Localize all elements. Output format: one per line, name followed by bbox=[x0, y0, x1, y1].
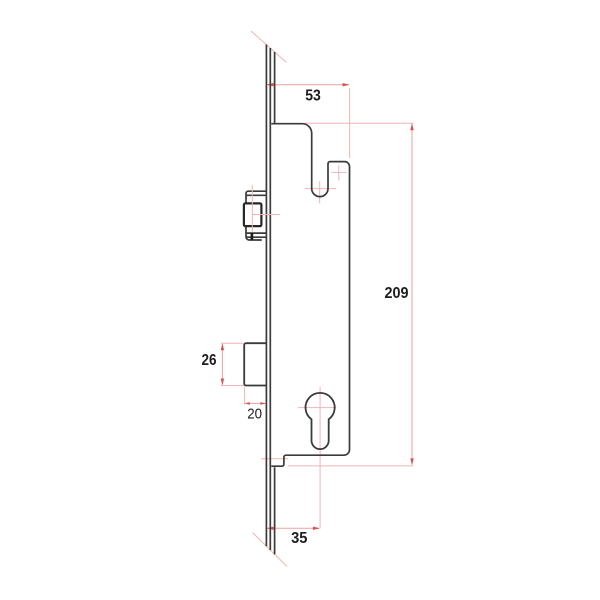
svg-text:53: 53 bbox=[305, 88, 321, 105]
svg-text:20: 20 bbox=[247, 405, 262, 422]
svg-text:26: 26 bbox=[202, 352, 217, 369]
svg-text:35: 35 bbox=[291, 530, 307, 547]
svg-text:209: 209 bbox=[385, 285, 409, 302]
